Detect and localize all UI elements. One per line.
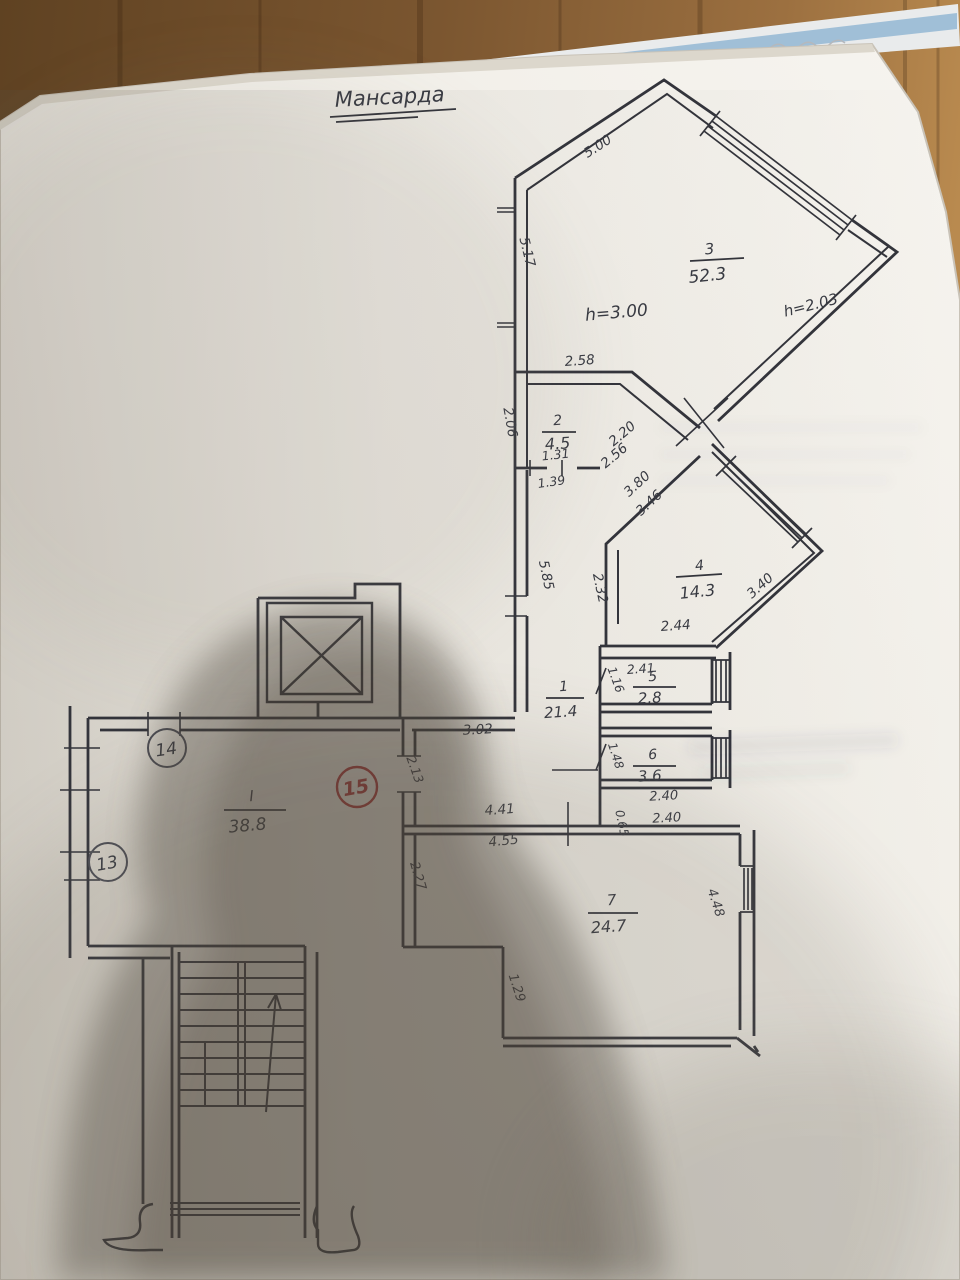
room5-area: 2.8 — [637, 688, 662, 707]
room1-area: 21.4 — [543, 702, 578, 722]
room3-number: 3 — [704, 240, 715, 259]
room4-number: 4 — [694, 558, 705, 575]
room1-number: 1 — [559, 679, 569, 696]
dim-2-44: 2.44 — [660, 617, 691, 635]
room3-area: 52.3 — [688, 264, 728, 288]
room6-number: 6 — [648, 747, 658, 763]
room4-area: 14.3 — [679, 580, 716, 603]
floorplan-photo: Мансарда 3 52.3 h=3.00 h=2.03 2 4.5 4 14… — [0, 0, 960, 1280]
dim-2-41: 2.41 — [626, 660, 655, 677]
